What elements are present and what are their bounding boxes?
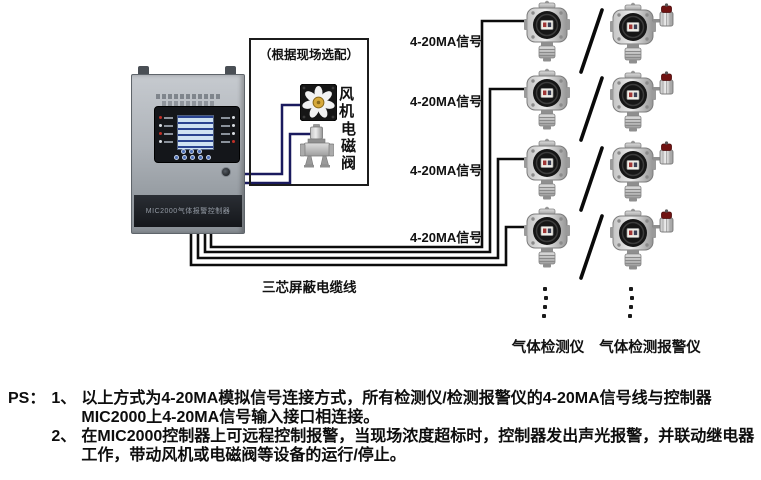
note-text: 在MIC2000控制器上可远程控制报警，当现场浓度超标时，控制器发出声光报警，并… (81, 427, 756, 465)
panel-buttons (181, 149, 202, 154)
valve-label: 电磁阀 (340, 121, 355, 172)
ps-prefix: PS： (8, 389, 45, 465)
signal-label: 4-20MA信号 (410, 227, 482, 246)
gas-controller: MIC2000气体报警控制器 (131, 66, 243, 232)
gas-detector (524, 138, 570, 200)
signal-label: 4-20MA信号 (410, 31, 482, 50)
ps-notes: PS： 1、 以上方式为4-20MA模拟信号连接方式，所有检测仪/检测报警仪的4… (8, 389, 756, 465)
alarm-caption: 气体检测报警仪 (592, 336, 708, 357)
wiring-diagram: MIC2000气体报警控制器 （根据现场选配） 风机 (0, 0, 761, 480)
controller-nameplate: MIC2000气体报警控制器 (134, 195, 242, 227)
lcd-screen (177, 115, 214, 150)
gas-detector (524, 0, 570, 62)
note-number: 2、 (51, 427, 81, 465)
fan-icon (300, 84, 337, 121)
signal-label: 4-20MA信号 (410, 91, 482, 110)
fan-label: 风机 (338, 86, 353, 120)
gas-detector-alarm (610, 140, 676, 202)
gas-detector-alarm (610, 208, 676, 270)
gas-detector (524, 206, 570, 268)
controller-cabinet: MIC2000气体报警控制器 (131, 74, 245, 234)
note-number: 1、 (51, 389, 81, 427)
controller-label: MIC2000气体报警控制器 (146, 206, 230, 216)
signal-label: 4-20MA信号 (410, 160, 482, 179)
panel-buttons (174, 155, 211, 160)
note-text: 以上方式为4-20MA模拟信号连接方式，所有检测仪/检测报警仪的4-20MA信号… (81, 389, 756, 427)
note-item: 1、 以上方式为4-20MA模拟信号连接方式，所有检测仪/检测报警仪的4-20M… (51, 389, 756, 427)
ellipsis-dots (543, 287, 548, 318)
etched-text (156, 94, 220, 99)
gas-detector (524, 68, 570, 130)
cable-bundle-label: 三芯屏蔽电缆线 (262, 276, 357, 296)
solenoid-valve-icon (300, 124, 334, 168)
status-leds (159, 116, 173, 143)
ellipsis-dots (629, 287, 634, 318)
note-item: 2、 在MIC2000控制器上可远程控制报警，当现场浓度超标时，控制器发出声光报… (51, 427, 756, 465)
status-leds (221, 116, 235, 143)
controller-panel (154, 106, 240, 163)
slash-separators (581, 10, 602, 278)
detector-caption: 气体检测仪 (502, 336, 594, 357)
door-lock (221, 167, 231, 177)
note-items: 1、 以上方式为4-20MA模拟信号连接方式，所有检测仪/检测报警仪的4-20M… (51, 389, 756, 465)
gas-detector-alarm (610, 2, 676, 64)
optional-box-title: （根据现场选配） (251, 44, 367, 63)
gas-detector-alarm (610, 70, 676, 132)
